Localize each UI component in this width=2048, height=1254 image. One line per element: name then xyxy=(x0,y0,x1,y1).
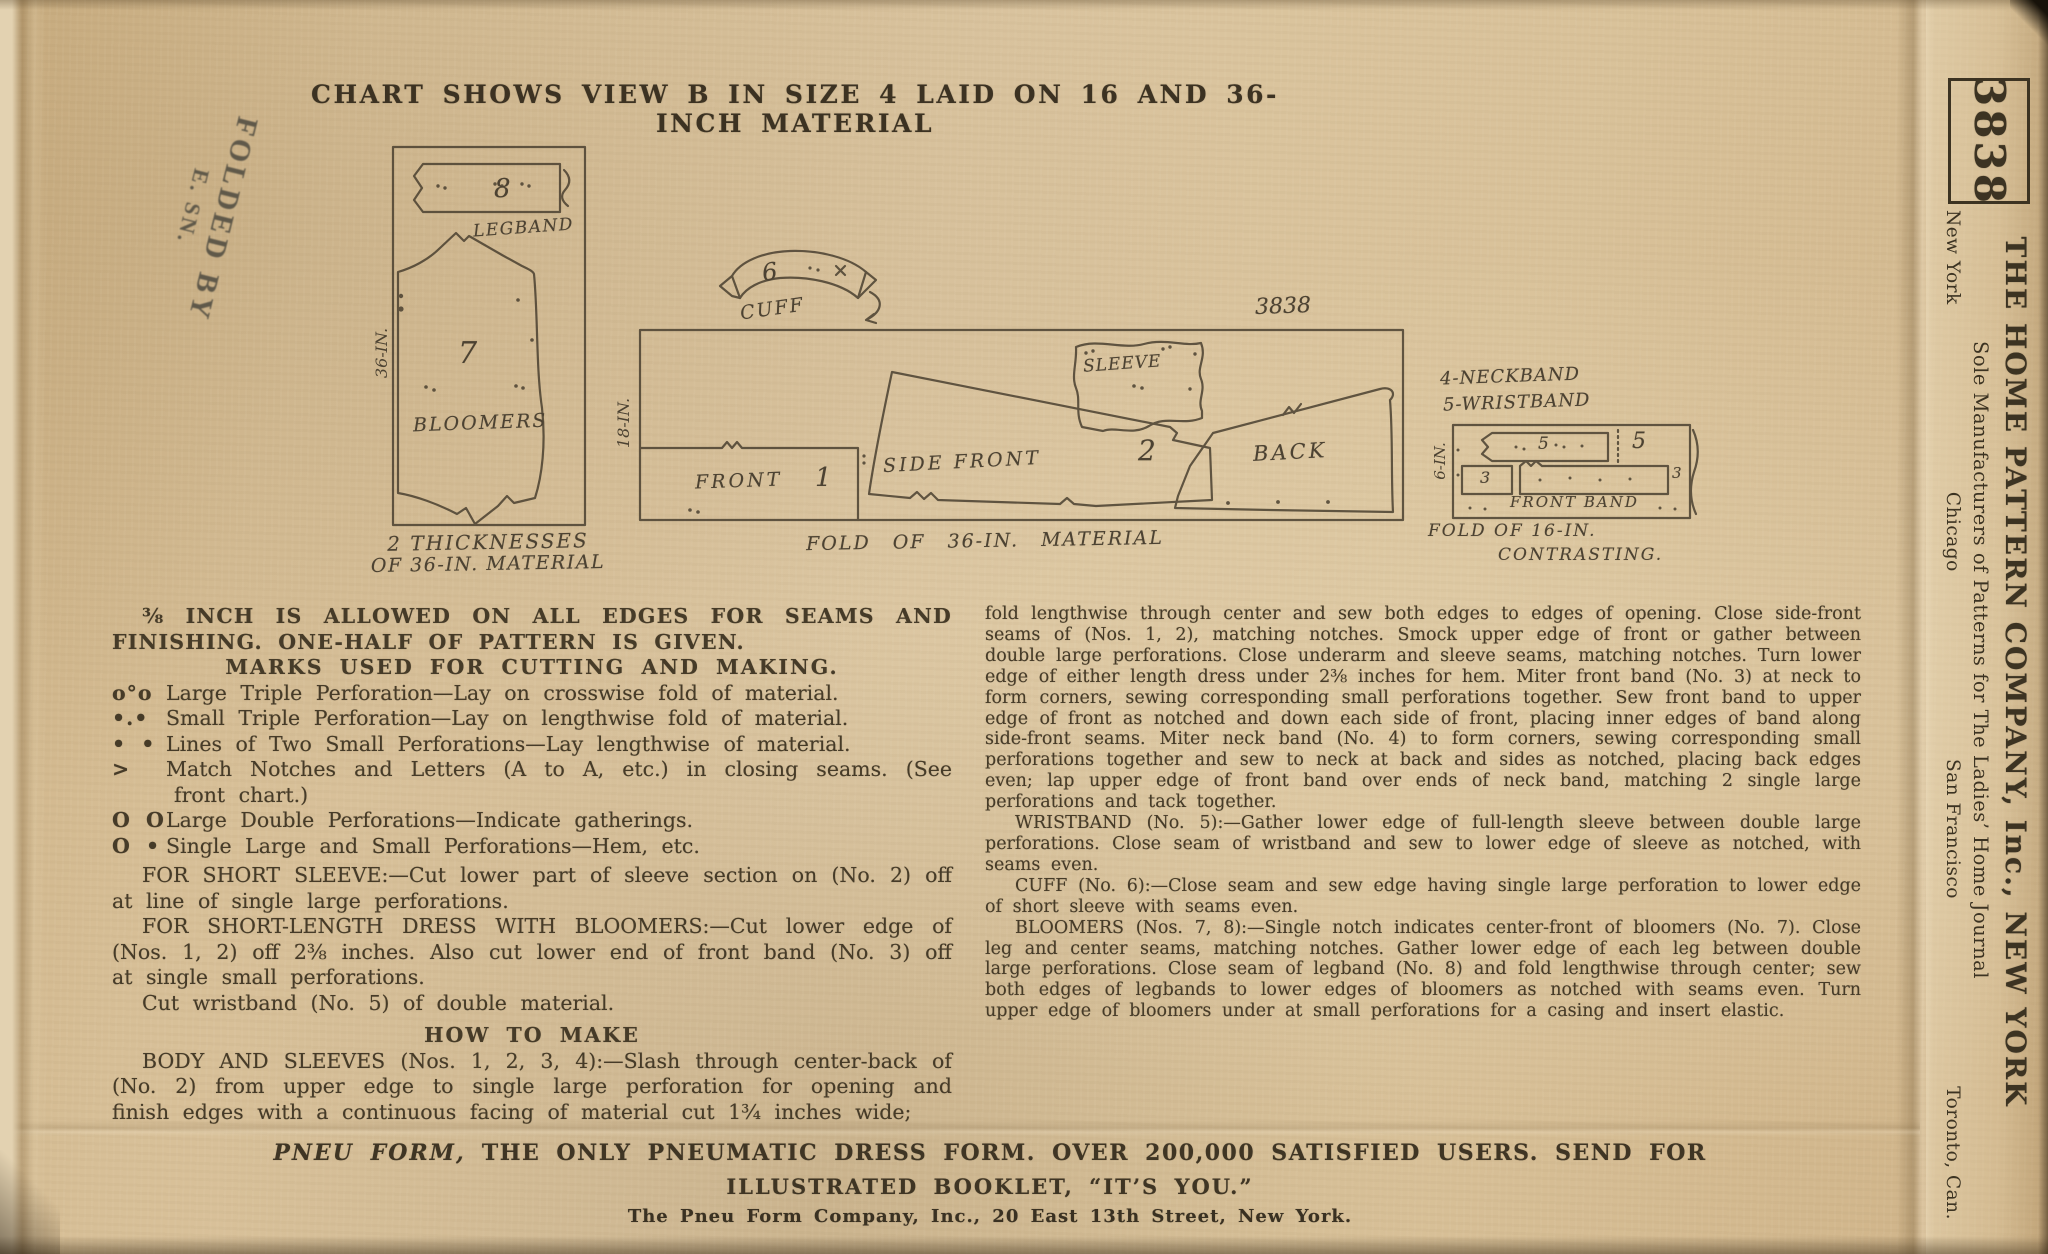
mark-text: Lines of Two Small Perforations—Lay leng… xyxy=(166,732,851,756)
cuff-arrow xyxy=(866,292,880,323)
pattern-number: 3838 xyxy=(1965,77,2014,206)
pneu-form-company-address: The Pneu Form Company, Inc., 20 East 13t… xyxy=(240,1206,1740,1227)
short-dress-note: FOR SHORT-LENGTH DRESS WITH BLOOMERS:—Cu… xyxy=(112,914,952,991)
left-layout-outline xyxy=(393,147,585,525)
city-chicago: Chicago xyxy=(1943,492,1964,572)
wristband-number: 5 xyxy=(1538,434,1549,454)
large-triple-perforation-icon: o°o xyxy=(112,681,166,707)
mark-text: Large Double Perforations—Indicate gathe… xyxy=(166,808,693,832)
mark-item-single-large-small: O •Single Large and Small Perforations—H… xyxy=(112,834,952,860)
assembly-paragraph: fold lengthwise through center and sew b… xyxy=(985,604,1861,813)
legband-brace-mark xyxy=(562,170,569,206)
pneu-form-brand: PNEU FORM, xyxy=(273,1140,465,1166)
two-small-perforations-icon: • • xyxy=(112,732,166,758)
short-sleeve-note: FOR SHORT SLEEVE:—Cut lower part of slee… xyxy=(112,863,952,914)
pattern-number-box: 3838 xyxy=(1948,78,2030,204)
company-name: THE HOME PATTERN COMPANY, Inc., NEW YORK xyxy=(1998,197,2034,1147)
small-triple-perforation-icon: •.• xyxy=(112,706,166,732)
right-layout-caption-1: FOLD OF 16-IN. xyxy=(1428,521,1596,541)
wristband-cut-note: Cut wristband (No. 5) of double material… xyxy=(112,991,952,1017)
middle-layout-width-label: 18-IN. xyxy=(613,393,633,453)
bottom-page-edge xyxy=(0,1236,2048,1254)
single-large-small-perforations-icon: O • xyxy=(112,834,166,860)
city-new-york: New York xyxy=(1943,210,1964,305)
vertical-fold-crease xyxy=(1896,0,1934,1254)
mark-text: Small Triple Perforation—Lay on lengthwi… xyxy=(166,706,848,730)
cuff-paragraph: CUFF (No. 6):—Close seam and sew edge ha… xyxy=(985,876,1861,918)
wristband-number-right: 5 xyxy=(1632,429,1646,454)
cutting-chart-svg xyxy=(270,100,1710,580)
legband-piece-outline xyxy=(414,164,560,212)
bottom-left-corner-shadow xyxy=(0,1150,60,1254)
middle-pattern-number: 3838 xyxy=(1255,293,1312,320)
frontband-piece-outline xyxy=(1520,461,1668,494)
wristband-paragraph: WRISTBAND (No. 5):—Gather lower edge of … xyxy=(985,813,1861,876)
mark-text: Match Notches and Letters (A to A, etc.)… xyxy=(166,757,952,807)
body-and-sleeves-paragraph: BODY AND SLEEVES (Nos. 1, 2, 3, 4):—Slas… xyxy=(112,1049,952,1126)
side-front-piece-outline xyxy=(869,372,1212,506)
cuff-cross-mark xyxy=(836,266,845,275)
left-layout-caption-2: OF 36-IN. MATERIAL xyxy=(358,551,618,578)
right-page-edge xyxy=(2038,0,2048,1254)
top-right-corner-shadow xyxy=(2010,0,2048,46)
company-cities: New York Chicago San Francisco Toronto, … xyxy=(1942,210,1964,1220)
bloomers-number: 7 xyxy=(458,336,477,371)
left-layout-width-label: 36-IN. xyxy=(371,323,391,383)
horizontal-fold-crease xyxy=(0,1120,1920,1136)
mark-item-notches: >Match Notches and Letters (A to A, etc.… xyxy=(112,757,952,808)
top-page-edge xyxy=(0,0,2048,10)
mark-text: Single Large and Small Perforations—Hem,… xyxy=(166,834,700,858)
seam-allowance-note: ⅜ INCH IS ALLOWED ON ALL EDGES FOR SEAMS… xyxy=(112,604,952,655)
cutting-chart: 8 LEGBAND 7 BLOOMERS 36-IN. 2 THICKNESSE… xyxy=(270,100,1710,580)
middle-layout-outline xyxy=(640,330,1403,520)
bloomers-piece-outline xyxy=(398,233,544,524)
bloomers-paragraph: BLOOMERS (Nos. 7, 8):—Single notch indic… xyxy=(985,918,1861,1023)
front-label: FRONT xyxy=(695,468,783,493)
left-page-edge xyxy=(0,0,46,1254)
marks-heading: MARKS USED FOR CUTTING AND MAKING. xyxy=(112,655,952,681)
right-layout-caption-2: CONTRASTING. xyxy=(1498,545,1663,565)
how-to-make-heading: HOW TO MAKE xyxy=(112,1023,952,1049)
city-toronto: Toronto, Can. xyxy=(1943,1086,1964,1220)
bloomers-label: BLOOMERS xyxy=(413,410,548,437)
right-layout-bracket xyxy=(1691,430,1698,514)
right-layout-width-label: 6-IN. xyxy=(1431,431,1449,491)
company-subtitle: Sole Manufacturers of Patterns for The L… xyxy=(1969,220,1993,1100)
mark-text: Large Triple Perforation—Lay on crosswis… xyxy=(166,681,839,705)
mark-item-two-small: • •Lines of Two Small Perforations—Lay l… xyxy=(112,732,952,758)
pneu-form-ad-line1: PNEU FORM, THE ONLY PNEUMATIC DRESS FORM… xyxy=(240,1140,1740,1166)
pattern-instruction-sheet: FOLDED BY E. SN. CHART SHOWS VIEW B IN S… xyxy=(0,0,2048,1254)
frontband-number-right: 3 xyxy=(1672,464,1682,482)
side-front-number: 2 xyxy=(1138,434,1156,467)
legband-number: 8 xyxy=(494,174,511,204)
mark-item-large-triple: o°oLarge Triple Perforation—Lay on cross… xyxy=(112,681,952,707)
mark-item-small-triple: •.•Small Triple Perforation—Lay on lengt… xyxy=(112,706,952,732)
front-number: 1 xyxy=(815,463,832,493)
match-notch-icon: > xyxy=(112,757,166,783)
front-band-label: FRONT BAND xyxy=(1510,493,1639,511)
city-san-francisco: San Francisco xyxy=(1943,759,1964,899)
left-column: ⅜ INCH IS ALLOWED ON ALL EDGES FOR SEAMS… xyxy=(112,604,952,1125)
pneu-form-ad-line2: ILLUSTRATED BOOKLET, “IT’S YOU.” xyxy=(240,1174,1740,1199)
pneu-form-ad-text: THE ONLY PNEUMATIC DRESS FORM. OVER 200,… xyxy=(466,1140,1707,1166)
mark-item-large-double: O OLarge Double Perforations—Indicate ga… xyxy=(112,808,952,834)
frontband-number-left: 3 xyxy=(1480,468,1490,487)
large-double-perforations-icon: O O xyxy=(112,808,166,834)
ink-stamp: FOLDED BY E. SN. xyxy=(156,106,265,315)
back-label: BACK xyxy=(1252,438,1328,466)
right-column: fold lengthwise through center and sew b… xyxy=(985,604,1861,1022)
